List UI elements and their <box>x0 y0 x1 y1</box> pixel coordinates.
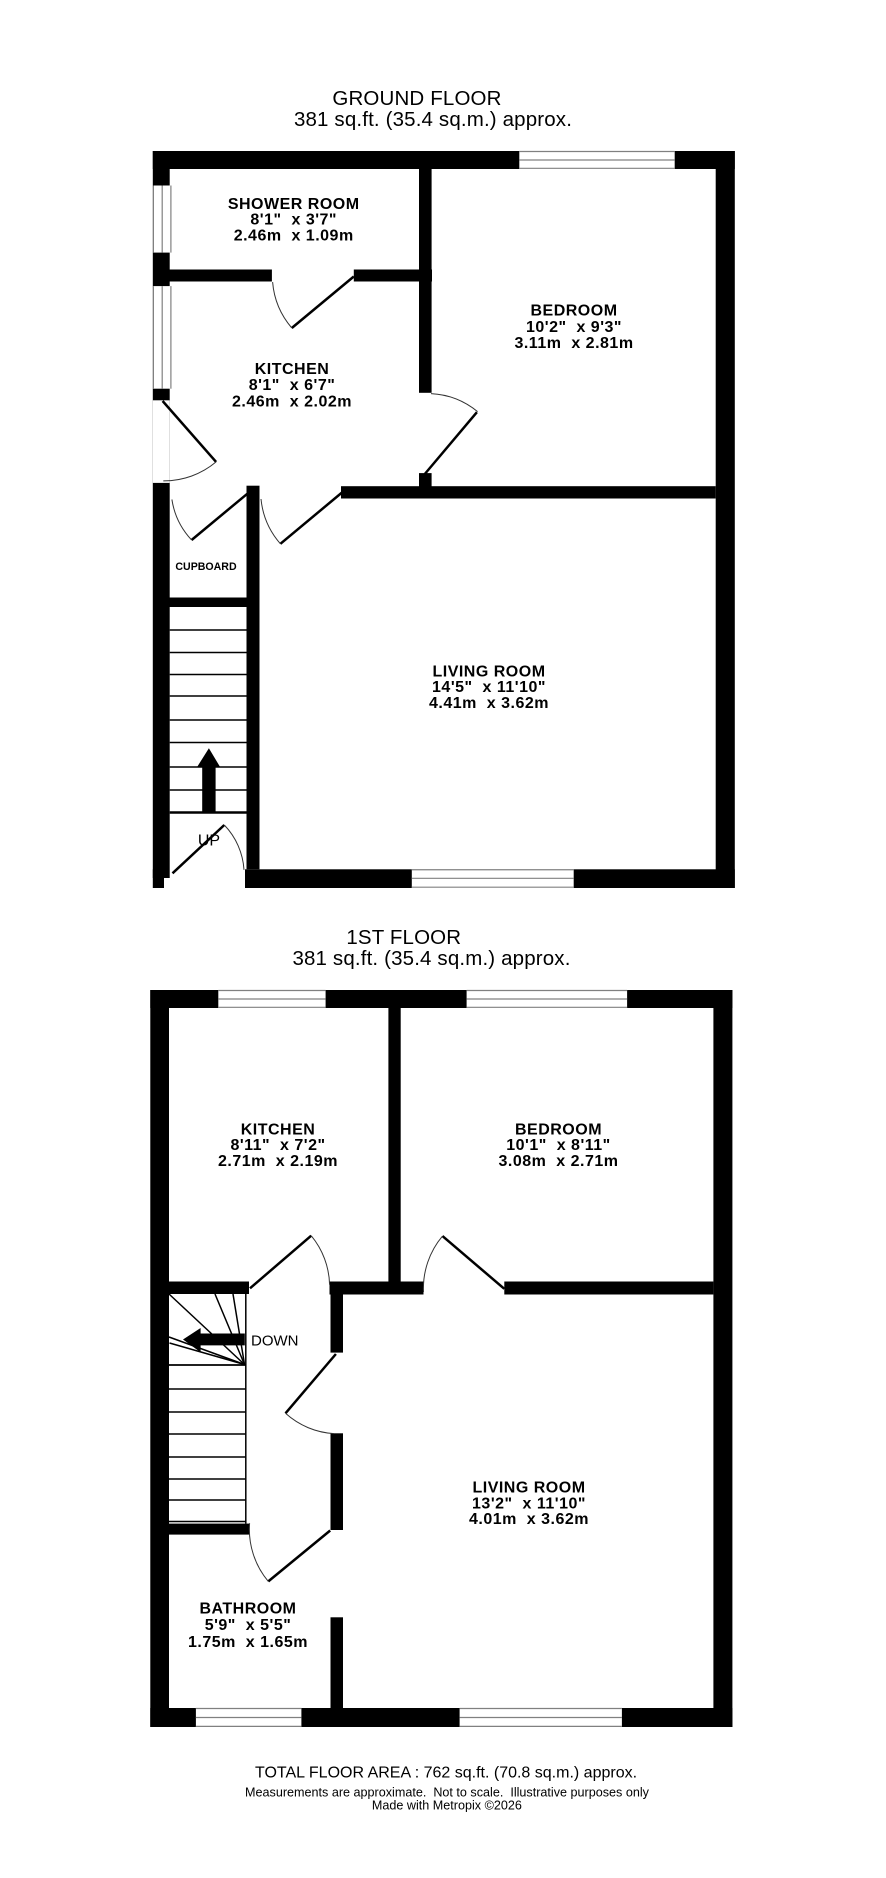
svg-text:8'1" x 6'7": 8'1" x 6'7" <box>249 377 336 394</box>
svg-text:4.01m x 3.62m: 4.01m x 3.62m <box>469 1511 589 1528</box>
svg-text:KITCHEN: KITCHEN <box>255 361 330 378</box>
svg-text:10'2" x 9'3": 10'2" x 9'3" <box>526 319 622 336</box>
svg-text:BATHROOM: BATHROOM <box>199 1601 296 1618</box>
svg-text:3.11m x 2.81m: 3.11m x 2.81m <box>514 335 633 352</box>
svg-text:Made with Metropix ©2026: Made with Metropix ©2026 <box>372 1798 522 1812</box>
svg-text:1ST FLOOR: 1ST FLOOR <box>346 926 461 949</box>
svg-text:3.08m x 2.71m: 3.08m x 2.71m <box>499 1153 619 1170</box>
svg-text:Measurements are approximate.: Measurements are approximate. Not to sca… <box>245 1785 650 1799</box>
svg-text:DOWN: DOWN <box>251 1332 299 1349</box>
svg-text:381 sq.ft. (35.4 sq.m.) approx: 381 sq.ft. (35.4 sq.m.) approx. <box>294 108 572 131</box>
svg-text:LIVING ROOM: LIVING ROOM <box>472 1480 585 1497</box>
svg-text:1.75m x 1.65m: 1.75m x 1.65m <box>188 1634 308 1651</box>
svg-text:BEDROOM: BEDROOM <box>515 1121 602 1138</box>
svg-text:4.41m x 3.62m: 4.41m x 3.62m <box>429 695 549 712</box>
svg-text:381 sq.ft. (35.4 sq.m.) approx: 381 sq.ft. (35.4 sq.m.) approx. <box>292 947 570 970</box>
svg-text:2.71m x 2.19m: 2.71m x 2.19m <box>218 1153 338 1170</box>
svg-text:10'1" x 8'11": 10'1" x 8'11" <box>506 1137 611 1154</box>
svg-text:TOTAL FLOOR AREA : 762 sq.ft.: TOTAL FLOOR AREA : 762 sq.ft. (70.8 sq.m… <box>255 1765 637 1782</box>
svg-text:2.46m x 1.09m: 2.46m x 1.09m <box>234 227 354 244</box>
svg-text:SHOWER ROOM: SHOWER ROOM <box>228 196 360 213</box>
svg-text:BEDROOM: BEDROOM <box>530 303 617 320</box>
svg-text:14'5" x 11'10": 14'5" x 11'10" <box>432 679 546 696</box>
svg-text:13'2" x 11'10": 13'2" x 11'10" <box>472 1495 586 1512</box>
svg-text:5'9" x 5'5": 5'9" x 5'5" <box>205 1617 292 1634</box>
svg-text:2.46m x 2.02m: 2.46m x 2.02m <box>232 393 352 410</box>
svg-text:8'1" x 3'7": 8'1" x 3'7" <box>250 212 337 229</box>
svg-text:LIVING ROOM: LIVING ROOM <box>432 663 545 680</box>
svg-text:KITCHEN: KITCHEN <box>241 1121 316 1138</box>
svg-text:GROUND FLOOR: GROUND FLOOR <box>332 87 501 110</box>
svg-text:CUPBOARD: CUPBOARD <box>175 561 237 573</box>
svg-text:8'11" x 7'2": 8'11" x 7'2" <box>230 1137 325 1154</box>
